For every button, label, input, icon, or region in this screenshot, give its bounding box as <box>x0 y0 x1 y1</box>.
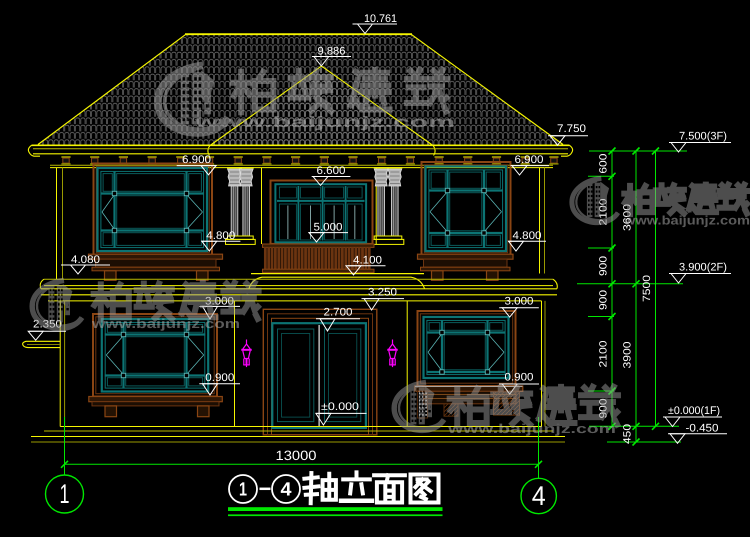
svg-text:7.500(3F): 7.500(3F) <box>679 131 727 143</box>
svg-text:4: 4 <box>532 481 546 511</box>
svg-text:10.761: 10.761 <box>364 13 397 25</box>
svg-text:4.800: 4.800 <box>513 230 542 242</box>
svg-text:600: 600 <box>598 153 610 173</box>
svg-text:1: 1 <box>60 479 70 509</box>
svg-text:450: 450 <box>622 424 634 444</box>
svg-text:6.600: 6.600 <box>317 165 346 177</box>
svg-text:4.800: 4.800 <box>206 230 235 242</box>
svg-text:4.100: 4.100 <box>353 254 382 266</box>
svg-text:-0.450: -0.450 <box>686 423 719 435</box>
svg-text:900: 900 <box>598 290 610 310</box>
svg-text:1: 1 <box>239 480 247 501</box>
svg-text:0.900: 0.900 <box>205 372 234 384</box>
svg-text:www.baijunjz.com: www.baijunjz.com <box>193 114 455 131</box>
svg-text:0.900: 0.900 <box>505 372 534 384</box>
svg-text:4: 4 <box>281 480 292 501</box>
svg-text:2.700: 2.700 <box>324 306 353 318</box>
svg-text:7500: 7500 <box>641 275 653 302</box>
svg-text:6.900: 6.900 <box>182 154 211 166</box>
svg-text:13000: 13000 <box>276 448 317 463</box>
svg-text:www.baijunjz.com: www.baijunjz.com <box>623 214 750 228</box>
svg-text:3900: 3900 <box>622 341 634 368</box>
svg-text:3.250: 3.250 <box>368 287 397 299</box>
svg-text:7.750: 7.750 <box>557 123 586 135</box>
svg-text:900: 900 <box>598 256 610 276</box>
svg-text:9.886: 9.886 <box>318 46 346 58</box>
svg-text:2100: 2100 <box>598 340 610 367</box>
svg-text:6.900: 6.900 <box>515 154 544 166</box>
svg-text:www.baijunjz.com: www.baijunjz.com <box>447 421 616 436</box>
svg-text:3.000: 3.000 <box>505 296 534 308</box>
svg-text:±0.000: ±0.000 <box>321 401 359 413</box>
svg-text:±0.000(1F): ±0.000(1F) <box>668 405 720 417</box>
svg-text:5.000: 5.000 <box>314 222 343 234</box>
svg-text:4.080: 4.080 <box>71 254 100 266</box>
svg-text:www.baijunjz.com: www.baijunjz.com <box>91 316 240 331</box>
svg-text:3.900(2F): 3.900(2F) <box>679 262 727 274</box>
